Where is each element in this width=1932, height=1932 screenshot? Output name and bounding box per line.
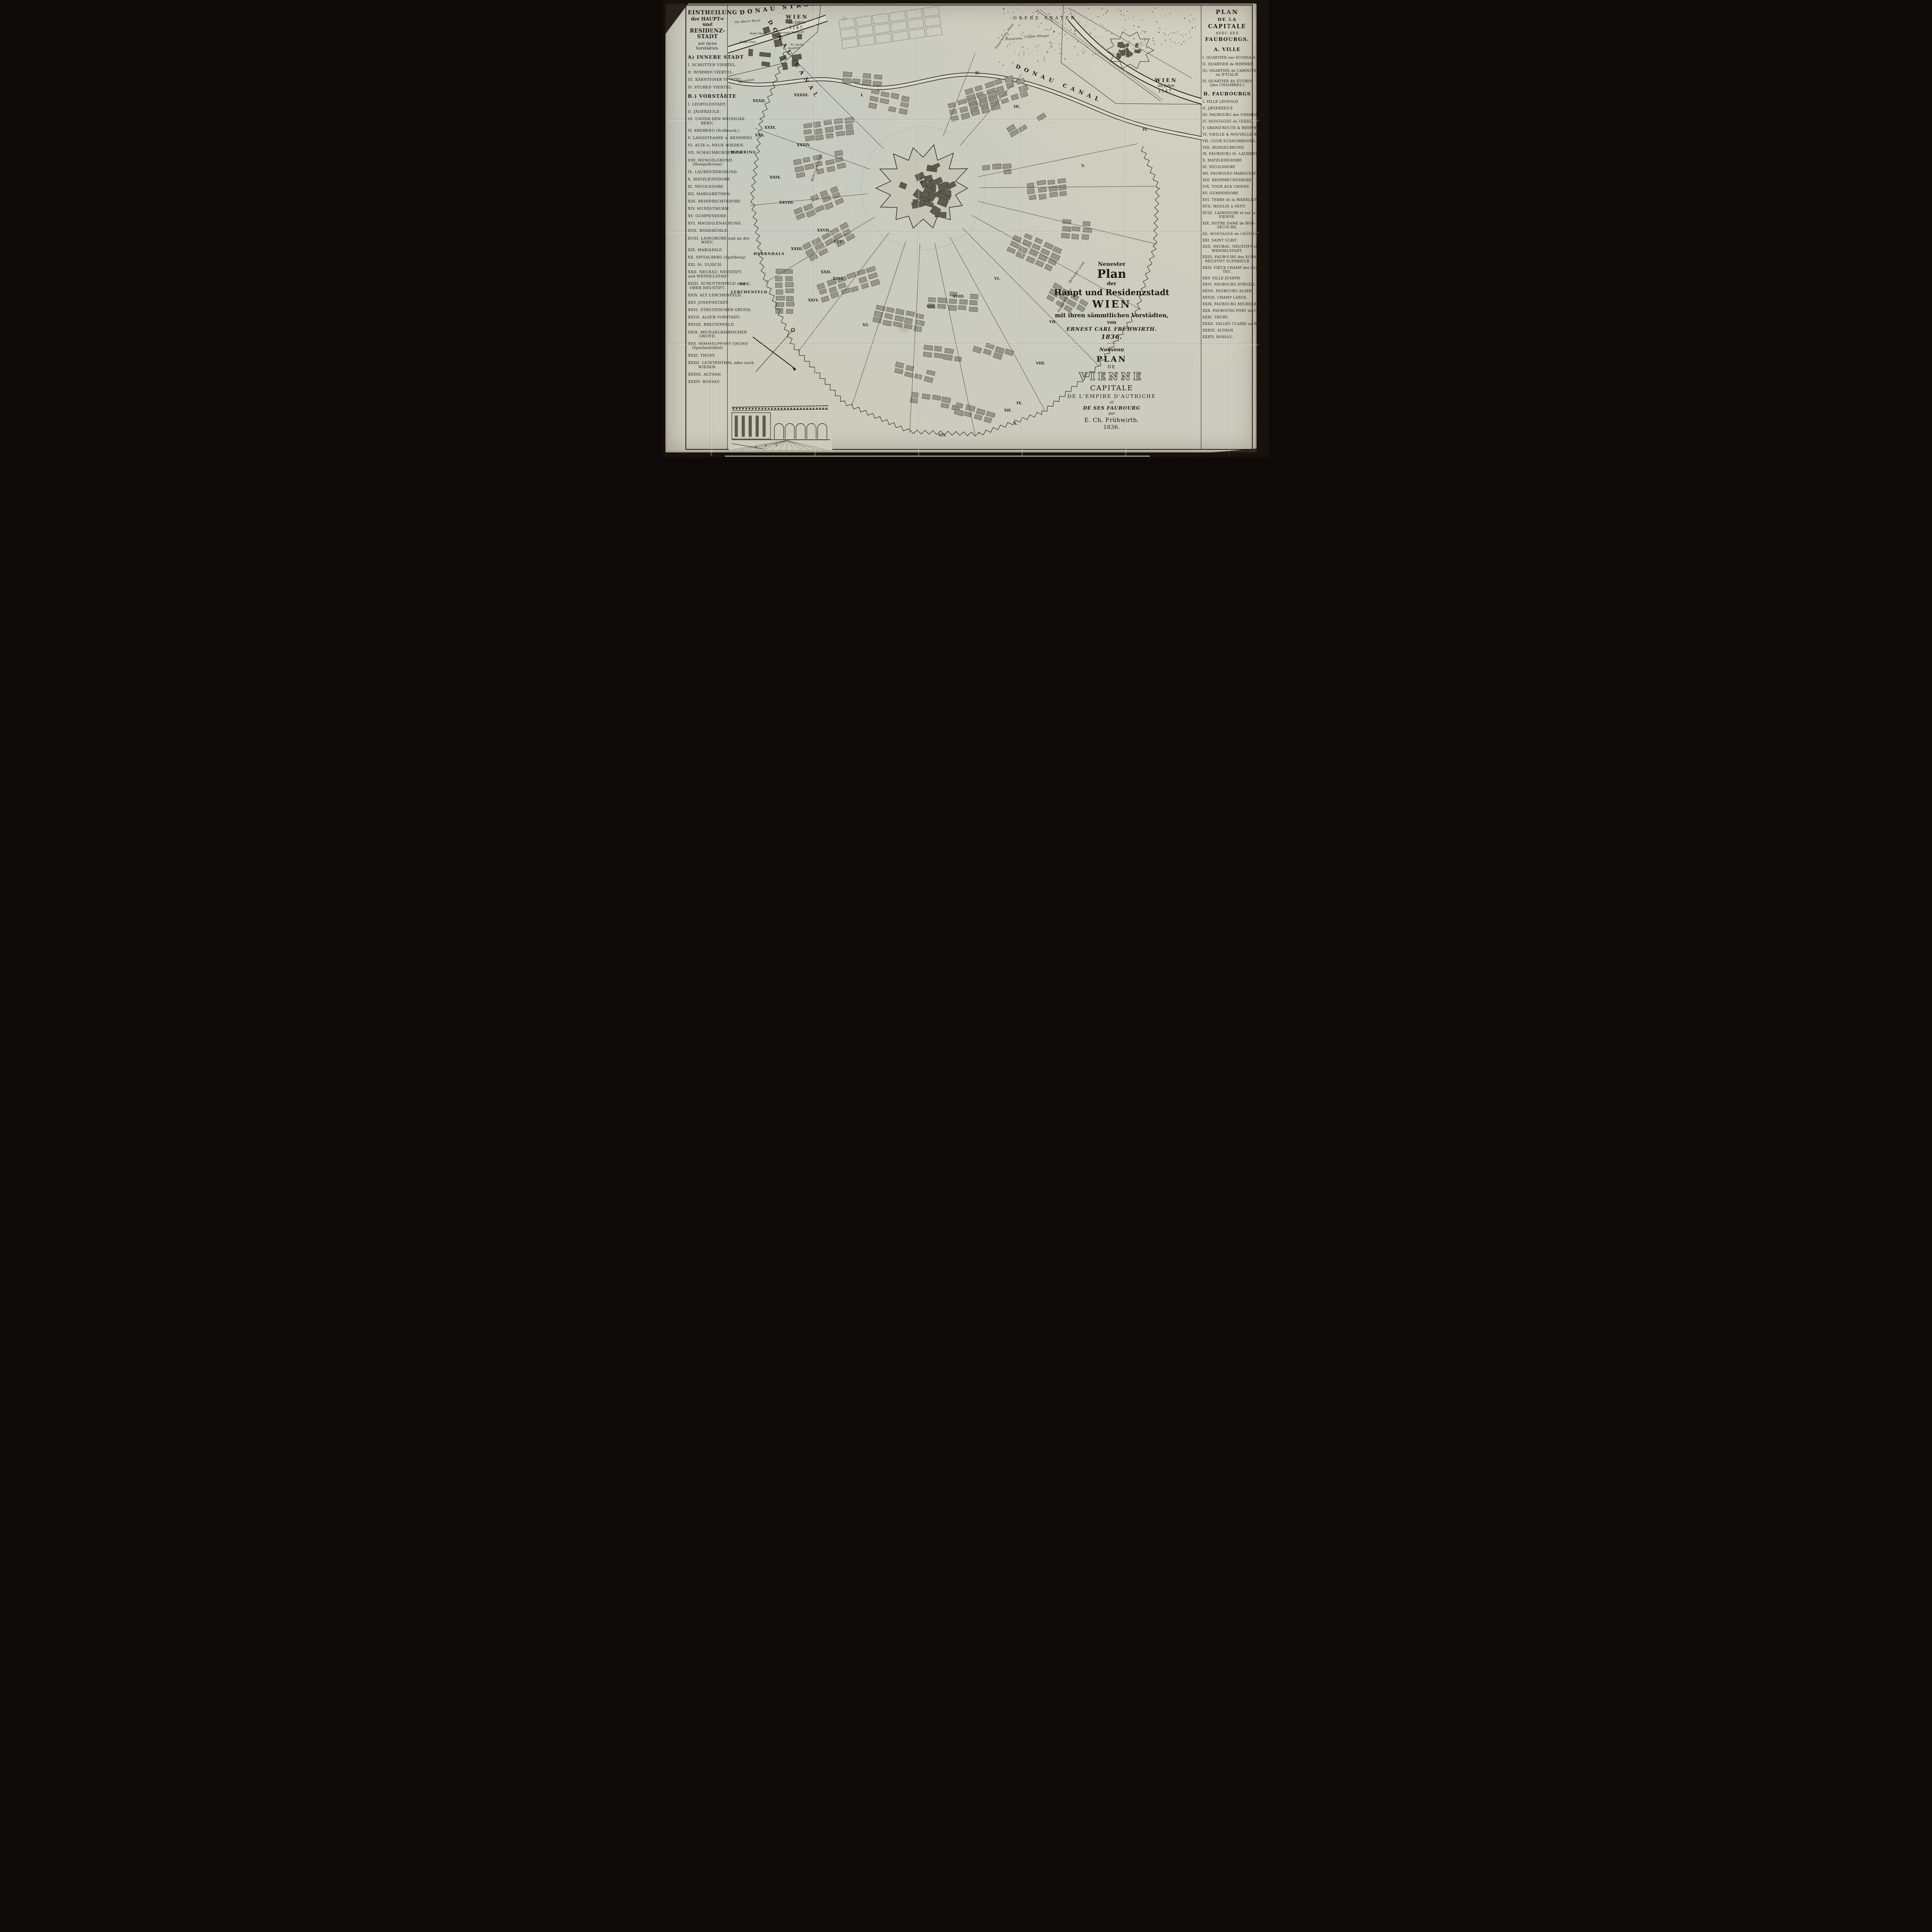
inset-1547-label: WIEN im Jahre 1547.: [1138, 78, 1194, 94]
cartouche-line-german: Neuester: [1045, 261, 1178, 267]
index-item: VI. ALTE u. NEUE WIEDEN.: [688, 144, 727, 148]
index-item: IV. STUBEN VIERTEL.: [688, 86, 727, 90]
suburb-list-french: I. VILLE LEOPOLD II. JÆGERZEILE III. FAU…: [1202, 100, 1252, 339]
index-item: XI. NICOLSDORF.: [1202, 165, 1252, 169]
city-quarter-list-french: I. QUARTIER des ECOSSAIS. II. QUARTIER d…: [1202, 56, 1252, 87]
cartouche-line-french: par: [1045, 412, 1178, 416]
cartouche-line-french: et: [1045, 400, 1178, 405]
index-item: III. KÄRNTHNER VIERTEL.: [688, 78, 727, 82]
index-item: XXVI. STROTZISCHER GRUND.: [688, 308, 727, 313]
index-item: XXVII. ALSER VORSTADT.: [688, 316, 727, 320]
index-item: VIII. HUNGELBRUNN.: [1202, 146, 1252, 150]
section-heading-faubourgs: B. FAUBOURGS: [1202, 91, 1252, 97]
index-item: XII. MARGARETHEN.: [688, 192, 727, 197]
table-edge-sliver: [725, 456, 1150, 457]
index-item: XXVII. FAUBOURG ALSER.: [1202, 289, 1252, 293]
index-item: XIV. HUNDSTHURM.: [688, 207, 727, 211]
index-item: III. FAUBOURG des CHAMOISSEURS: [1202, 113, 1252, 117]
paper-stain: [1135, 41, 1145, 48]
index-item: XXXIII. ALTHAN.: [1202, 329, 1252, 333]
index-item: I. SCHOTTEN VIERTEL.: [688, 63, 727, 68]
index-item: XXV. VILLE JOSEPH.: [1202, 277, 1252, 281]
index-item: XII. FAUBOURG MARGUERITE.: [1202, 172, 1252, 176]
cartouche-line-german: Haupt und Residenzstadt: [1045, 287, 1178, 297]
index-item: XXII. NEUBAU, NEUSTIFT et WENDELSTADT.: [1202, 245, 1252, 253]
cartouche-line-french: E. Ch. Frühwirth.: [1045, 417, 1178, 423]
index-item: II. WIMMER VIERTEL.: [688, 71, 727, 75]
index-item: IX. LAURENZERGRUND.: [688, 170, 727, 175]
index-item: XXVI. FAUBOURG STROZZI.: [1202, 283, 1252, 287]
cartouche-line-german: WIEN: [1045, 299, 1178, 310]
cartouche-line-german: Plan: [1045, 267, 1178, 281]
index-item: XIII. REINPRECHTSDORF.: [1202, 179, 1252, 182]
right-index-panel: PLAN DE LA CAPITALE AVEC SES FAUBOURGS. …: [1202, 9, 1252, 446]
index-item: IV. QUARTIER dit STUBEN (des CHAMBRES.): [1202, 80, 1252, 87]
cartouche-line-german: der: [1045, 281, 1178, 287]
index-item: XXV. JOSEPHSTADT.: [688, 301, 727, 305]
left-title-line: RESIDENZ-STADT: [688, 28, 727, 40]
index-item: V. GRAND'ROUTE & RENNWEG.: [1202, 126, 1252, 130]
index-item: XXIV. ALT LERCHENFELD.: [688, 294, 727, 298]
right-title-line: PLAN: [1202, 9, 1252, 15]
right-title-line: AVEC SES: [1202, 32, 1252, 36]
index-item: XXIX. MICHAELBAIRISCHER GRUND.: [688, 331, 727, 339]
index-item: XXXI. THURY.: [688, 354, 727, 358]
cartouche-line-french: DE SES FAUBOURG: [1045, 405, 1178, 411]
fold-crease: [668, 231, 1259, 234]
index-item: XV. GUMPENDORF.: [1202, 192, 1252, 196]
inset-year: 1147.: [769, 25, 825, 30]
index-item: I. QUARTIER des ECOSSAIS.: [1202, 56, 1252, 60]
left-title-line: EINTHEILUNG: [688, 10, 727, 16]
inset-year-caption: im Jahre: [769, 20, 825, 25]
index-item: XIII. REINPRECHTSDORF.: [688, 200, 727, 204]
index-item: XIX. NOTRE DAME de BON- SECOURS.: [1202, 222, 1252, 230]
index-item: V. LANDSTRASSE u. RENNWEG: [688, 136, 727, 141]
index-item: I. VILLE LEOPOLD: [1202, 100, 1252, 104]
index-item: XVI. MAGDALENAGRUND.: [688, 222, 727, 226]
index-item: XX. SPITALBERG (Spitlberg): [688, 256, 727, 260]
right-title-line: DE LA: [1202, 17, 1252, 22]
cartouche-line-french: PLAN: [1045, 354, 1178, 364]
inner-city-quarter-list: I. SCHOTTEN VIERTEL. II. WIMMER VIERTEL.…: [688, 63, 727, 90]
cartouche-line-german: 1836.: [1045, 333, 1178, 340]
right-title-line: FAUBOURGS.: [1202, 37, 1252, 43]
paper-stain: [896, 323, 912, 334]
index-item: XXVIII. BREITENFELD.: [688, 323, 727, 327]
index-item: X. MATZLEINSDORF.: [1202, 159, 1252, 163]
section-heading-vorstaedte: B.) VORSTÄDTE: [688, 94, 727, 99]
index-item: VII. COUR SCHAUMBOURG.: [1202, 139, 1252, 143]
cartouche-line-french: DE: [1045, 364, 1178, 369]
cartouche-line-french: CAPITALE: [1045, 384, 1178, 392]
right-title-line: CAPITALE: [1202, 24, 1252, 30]
city-map: DONAU STROMIm obern WerdDONAU CANALDONAU…: [728, 5, 1202, 450]
index-item: I. LEOPOLDSTADT.: [688, 103, 727, 107]
fold-crease: [668, 344, 1259, 346]
index-item: XXIII. SCHOTTENFELD oder OBER NEUSTIFT.: [688, 282, 727, 291]
index-item: XXXIV. ROSSAU.: [688, 380, 727, 384]
index-item: XIX. MARIAHILF.: [688, 248, 727, 253]
index-item: XXI. SAINT ULRIC: [1202, 239, 1252, 243]
index-item: XXVIII. CHAMP LARGE.: [1202, 296, 1252, 300]
index-item: XV. GUMPENDORF.: [688, 214, 727, 219]
cartouche-line-french: VIENNE: [1045, 371, 1178, 383]
paper-sheet: EINTHEILUNG der HAUPT= und RESIDENZ-STAD…: [665, 3, 1257, 452]
left-panel-title: EINTHEILUNG der HAUPT= und RESIDENZ-STAD…: [688, 10, 727, 51]
fold-crease: [668, 119, 1259, 122]
left-title-line: der HAUPT= und: [688, 17, 727, 27]
cartouche-line-german: ERNEST CARL FRÜHWIRTH.: [1045, 327, 1178, 332]
index-item: III. QUARTIER de CARINTHIE ou D'ITALIE: [1202, 69, 1252, 77]
inset-year: 1547.: [1138, 88, 1194, 94]
left-title-line: mit ihren Vorstädten.: [688, 41, 727, 51]
index-item: II. JÆGERZEILE: [1202, 107, 1252, 111]
index-item: IV. ERDBERG (Erdbruch.): [688, 129, 727, 133]
index-item: II. JÄGERZEILE.: [688, 110, 727, 114]
index-item: XXXII. LICHTENTHAL oder auch WIESEN.: [688, 361, 727, 370]
index-item: XXII. NEUBAU, NEUSTIFT. und WENDELSTADT: [688, 270, 727, 279]
index-item: XXIV. VIEUX CHAMP des ALOUET- TES.: [1202, 266, 1252, 274]
index-item: XXXII. VALLÉE CLAIRE ou WIESEN.: [1202, 322, 1252, 326]
index-item: XXX. FAUBOURG PORT du CIEL.: [1202, 309, 1252, 313]
index-item: XXXIV. ROSSAU.: [1202, 335, 1252, 339]
index-item: X. MATZLEINSDORF.: [688, 178, 727, 182]
inset-city-name: WIEN: [769, 14, 825, 20]
inset-1147-label: WIEN im Jahre 1147.: [769, 14, 825, 30]
section-heading-innere-stadt: A) INNERE STADT: [688, 54, 727, 60]
cartouche-line-french: 1836.: [1045, 424, 1178, 430]
index-item: IX. FAUBOURG St. LAURENT.: [1202, 152, 1252, 156]
suburb-list-german: I. LEOPOLDSTADT. II. JÄGERZEILE. III. UN…: [688, 103, 727, 384]
index-item: XXIX. FAUBOURG MICHELBAIER.: [1202, 303, 1252, 306]
index-item: XXXI. THURY.: [1202, 316, 1252, 320]
index-item: VIII. HUNGELGRUND. (Hungelbrunn): [688, 159, 727, 167]
index-item: VII. SCHAUMBURGERHOF.: [688, 151, 727, 155]
inset-city-name: WIEN: [1138, 78, 1194, 83]
cartouche-line-french: DE L'EMPIRE D'AUTRICHE: [1045, 394, 1178, 400]
cartouche-line-german: mit ihren sämmtlichen Vorstädten,: [1045, 312, 1178, 319]
index-item: II. QUARTIER de WIMMER.: [1202, 63, 1252, 66]
section-heading-ville: A. VILLE: [1202, 47, 1252, 52]
map-photograph: EINTHEILUNG der HAUPT= und RESIDENZ-STAD…: [663, 0, 1269, 457]
index-item: XXIII. FAUBOURG des ECOSSAIS et NEUSTIFT…: [1202, 255, 1252, 263]
index-item: IVX. TOUR AUX CHIENS: [1202, 185, 1252, 189]
index-item: XI. NICOLSDORF.: [688, 185, 727, 189]
cartouche-line-french: Nouveau: [1045, 347, 1178, 353]
index-item: XVII. MOULIN à VENT.: [1202, 205, 1252, 209]
index-item: XVIII. LAIMGRUBE et sur la VIENNE.: [1202, 211, 1252, 219]
index-item: XVI. TERRE de la MADELEINE: [1202, 198, 1252, 202]
index-item: VI. VIEILLE & NOUVELLE WIEDEN.: [1202, 133, 1252, 137]
cartouche-line-german: von: [1045, 320, 1178, 325]
index-item: XXI. St. ULRICH.: [688, 263, 727, 267]
left-index-panel: EINTHEILUNG der HAUPT= und RESIDENZ-STAD…: [688, 10, 727, 446]
index-item: XXXIII. ALTHAN.: [688, 373, 727, 377]
inset-year-caption: im Jahre: [1138, 84, 1194, 88]
right-panel-title: PLAN DE LA CAPITALE AVEC SES FAUBOURGS.: [1202, 9, 1252, 43]
paper-stain: [840, 15, 849, 22]
index-item: XVIII. LAIMGRUBE und an der WIEN.: [688, 237, 727, 245]
